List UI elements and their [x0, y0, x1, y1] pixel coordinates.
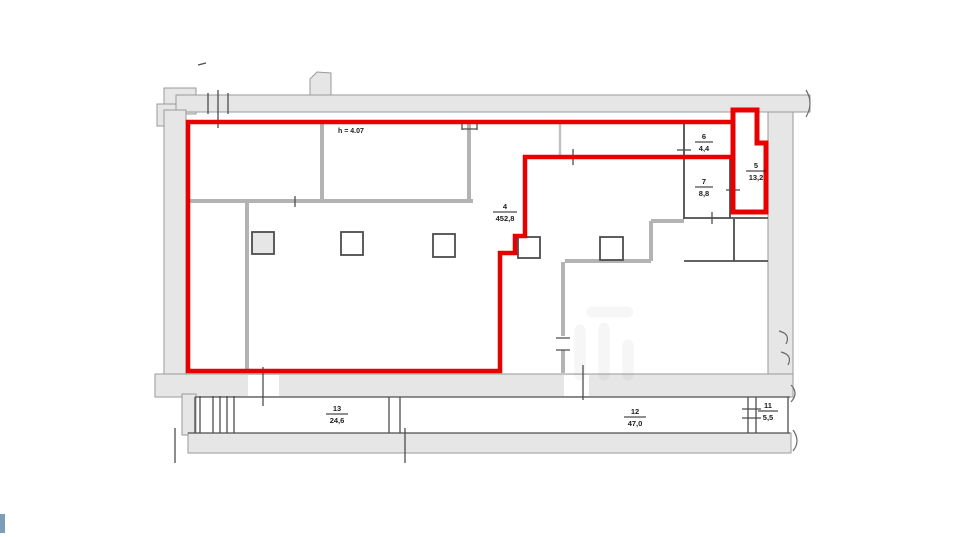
- wall-bottom-band: [188, 433, 791, 453]
- ceiling-height-note: h = 4.07: [338, 128, 364, 135]
- column-5: [600, 237, 623, 260]
- room-number: 11: [764, 401, 772, 410]
- wall-top-band: [176, 95, 810, 112]
- room-area: 452,8: [496, 214, 515, 223]
- room-number: 4: [503, 202, 508, 211]
- wall-roof-stack: [310, 72, 331, 95]
- ticks-room11-door: [742, 409, 761, 418]
- room-label-5: 5 13,2: [746, 161, 766, 182]
- highlight-room5-outline: [733, 110, 766, 212]
- column-1: [252, 232, 274, 254]
- wall-room13-12: [389, 397, 400, 433]
- room-area: 47,0: [628, 419, 643, 428]
- room-label-7: 7 8,8: [695, 177, 713, 198]
- columns: [252, 232, 623, 260]
- floor-plan-image: h = 4.07 4 452,8 6 4,4 7 8,8 5 13,2 13 2…: [0, 0, 972, 537]
- room-area: 8,8: [699, 189, 709, 198]
- corner-accent-bar: [0, 514, 5, 533]
- room-label-4: 4 452,8: [493, 202, 517, 223]
- wall-left-band: [164, 110, 186, 376]
- room-label-11: 11 5,5: [758, 401, 778, 422]
- wall-right-band: [768, 112, 793, 376]
- partition-mid-stepped: [565, 221, 684, 261]
- column-4: [518, 237, 540, 258]
- column-3: [433, 234, 455, 257]
- break-mark-right-4: [793, 430, 797, 451]
- ticks-mid-partition-door: [556, 338, 570, 350]
- room-number: 13: [333, 404, 341, 413]
- wall-bottom-left-segment: [182, 394, 196, 435]
- room-label-13: 13 24,6: [326, 404, 348, 425]
- floor-plan-canvas: h = 4.07 4 452,8 6 4,4 7 8,8 5 13,2 13 2…: [0, 0, 972, 537]
- watermark: [580, 312, 628, 375]
- room-area: 13,2: [749, 173, 764, 182]
- building-outer-walls: [155, 72, 810, 453]
- room-area: 24,6: [330, 416, 345, 425]
- room-number: 7: [702, 177, 706, 186]
- room-number: 5: [754, 161, 758, 170]
- room-number: 12: [631, 407, 639, 416]
- room-label-6: 6 4,4: [695, 132, 713, 153]
- column-2: [341, 232, 363, 255]
- staircase: [200, 396, 234, 433]
- room-number: 6: [702, 132, 706, 141]
- tick-stray-mark: [198, 63, 206, 65]
- room-area: 4,4: [699, 144, 710, 153]
- wall-room12-11: [748, 397, 756, 433]
- corridor-rooms: [188, 396, 790, 433]
- room-label-12: 12 47,0: [624, 407, 646, 428]
- room-area: 5,5: [763, 413, 773, 422]
